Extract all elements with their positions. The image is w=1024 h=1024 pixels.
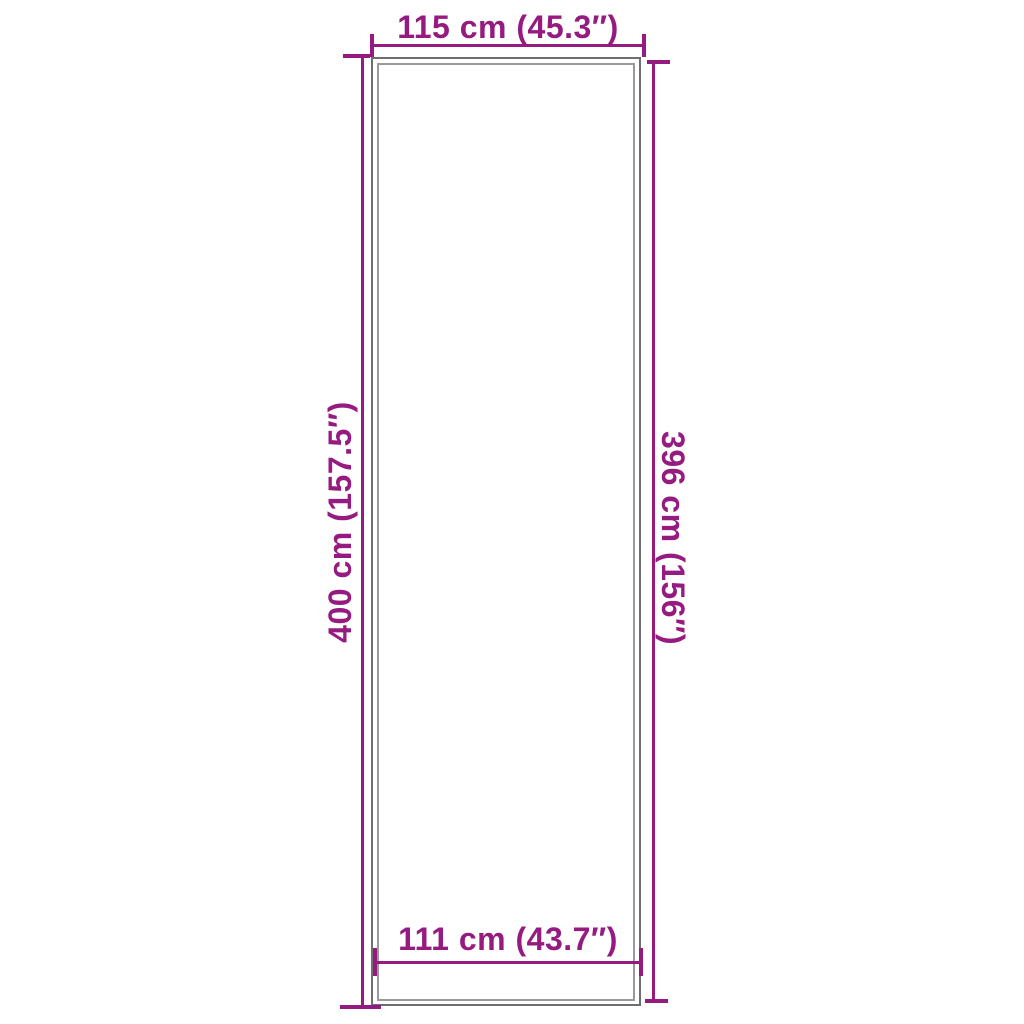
- product-outline-inner: [377, 63, 635, 1001]
- dimension-tick-left-bottom: [340, 1005, 381, 1009]
- dimension-tick-top-right: [642, 34, 646, 57]
- dimension-line-bottom: [375, 961, 641, 964]
- dimension-tick-left-top: [343, 54, 370, 58]
- dimension-tick-right-top: [647, 60, 670, 64]
- dimension-tick-bottom-left: [373, 948, 377, 976]
- dimension-line-right: [652, 61, 655, 1002]
- dimension-tick-top-left: [370, 34, 374, 57]
- dimension-label-left: 400 cm (157.5″): [324, 401, 356, 643]
- dimension-tick-bottom-right: [639, 948, 643, 976]
- dimension-label-right: 396 cm (156″): [657, 431, 689, 645]
- dimension-diagram: 115 cm (45.3″) 111 cm (43.7″) 400 cm (15…: [0, 0, 1024, 1024]
- dimension-line-left: [361, 56, 364, 1008]
- dimension-label-bottom: 111 cm (43.7″): [375, 923, 641, 955]
- dimension-line-top: [372, 44, 644, 47]
- dimension-label-top: 115 cm (45.3″): [372, 11, 644, 43]
- dimension-tick-right-bottom: [645, 999, 668, 1003]
